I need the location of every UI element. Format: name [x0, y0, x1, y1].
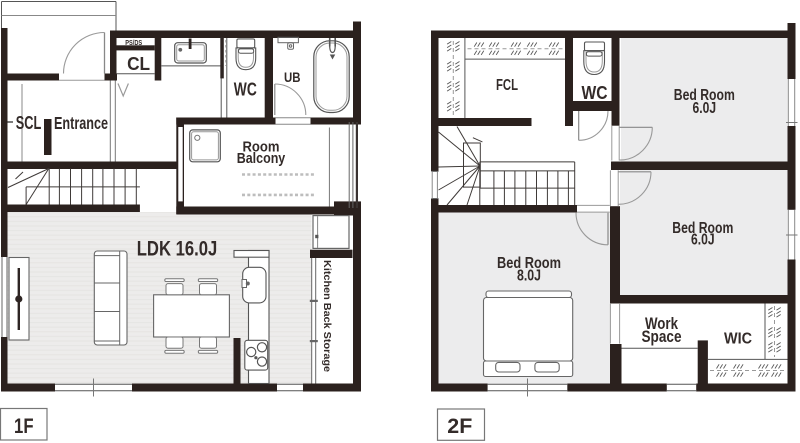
svg-text:6.0J: 6.0J: [693, 100, 717, 117]
svg-text:WIC: WIC: [724, 330, 752, 347]
svg-text:Space: Space: [642, 327, 682, 346]
svg-text:6.0J: 6.0J: [691, 232, 715, 249]
svg-text:8.0J: 8.0J: [517, 268, 541, 285]
svg-text:2F: 2F: [447, 415, 472, 438]
svg-text:WC: WC: [582, 83, 608, 103]
svg-text:CL: CL: [127, 53, 150, 74]
svg-text:Kitchen Back Storage: Kitchen Back Storage: [321, 260, 332, 372]
svg-text:Balcony: Balcony: [237, 151, 286, 167]
svg-text:PS/DS: PS/DS: [125, 38, 142, 47]
svg-text:WC: WC: [234, 80, 257, 100]
svg-text:1F: 1F: [14, 415, 34, 438]
svg-text:UB: UB: [284, 69, 301, 85]
svg-text:LDK 16.0J: LDK 16.0J: [137, 237, 218, 260]
svg-text:SCL: SCL: [16, 113, 42, 133]
svg-text:Entrance: Entrance: [54, 113, 108, 133]
svg-text:FCL: FCL: [496, 77, 518, 94]
